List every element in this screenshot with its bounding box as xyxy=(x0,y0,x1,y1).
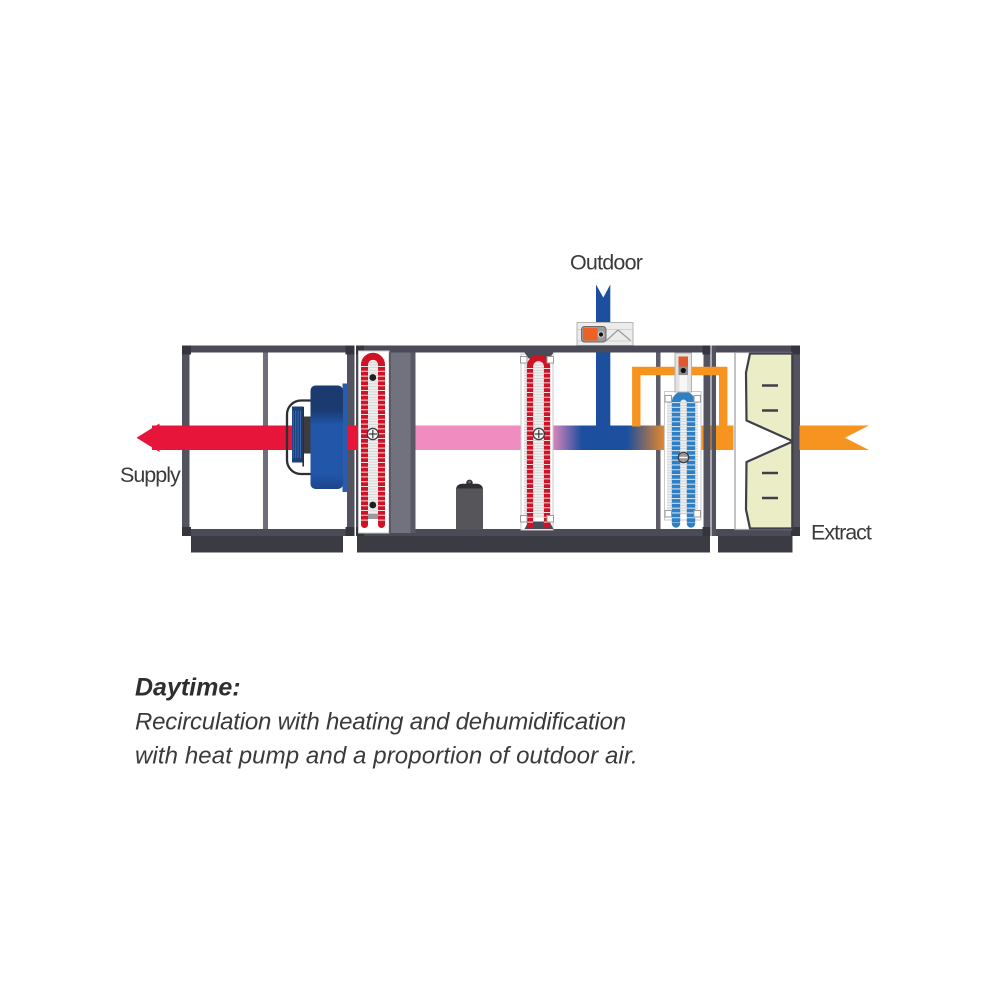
svg-text:with heat pump and a proportio: with heat pump and a proportion of outdo… xyxy=(135,743,638,770)
svg-text:Outdoor: Outdoor xyxy=(570,251,643,275)
svg-text:Daytime:: Daytime: xyxy=(135,674,241,702)
svg-text:Extract: Extract xyxy=(811,521,872,545)
svg-text:Recirculation with heating and: Recirculation with heating and dehumidif… xyxy=(135,709,626,736)
svg-text:Supply: Supply xyxy=(120,463,181,487)
